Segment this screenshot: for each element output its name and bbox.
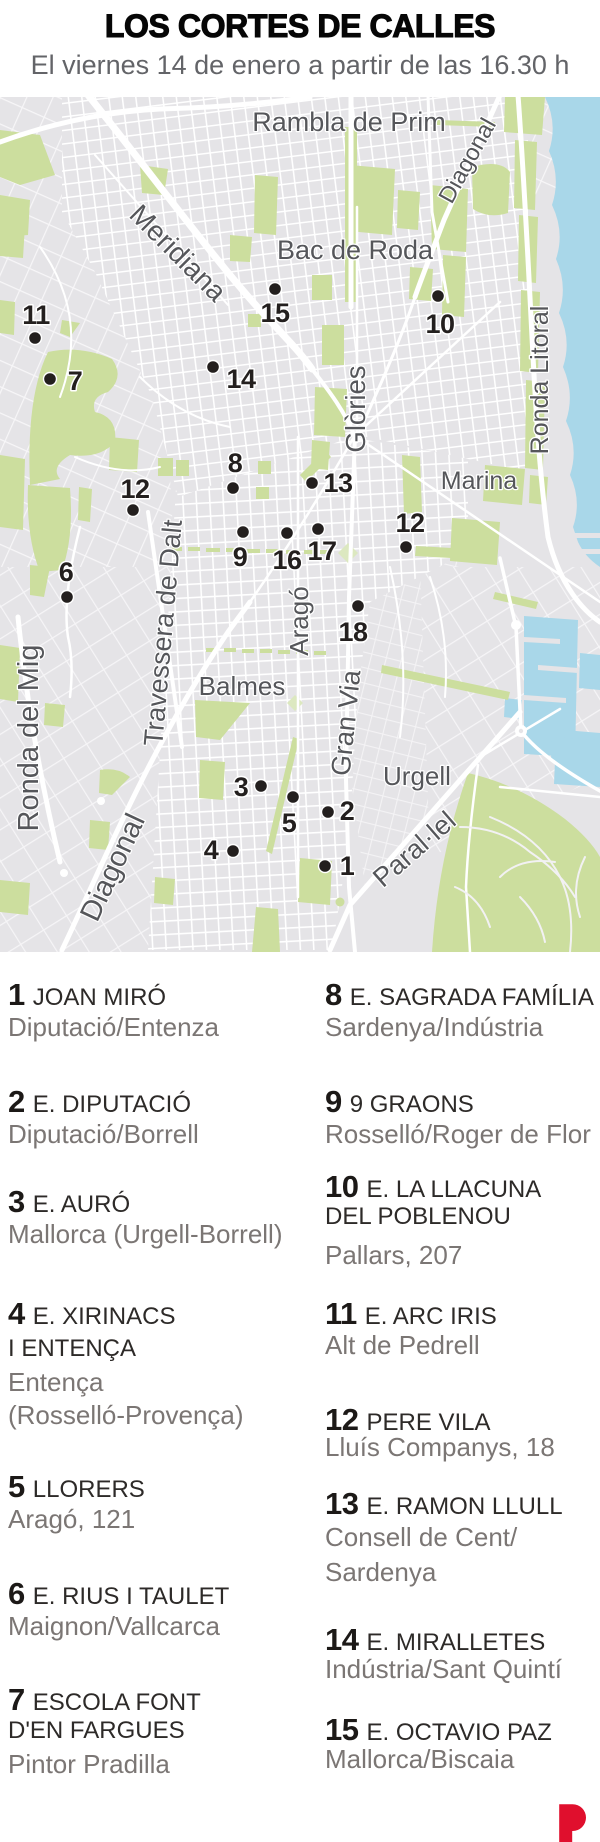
svg-text:Urgell: Urgell bbox=[383, 761, 451, 791]
svg-text:Balmes: Balmes bbox=[199, 671, 286, 701]
svg-text:6: 6 bbox=[59, 557, 74, 587]
svg-text:Diagonal: Diagonal bbox=[74, 809, 151, 926]
svg-text:Aragó: Aragó bbox=[284, 586, 314, 655]
svg-text:7: 7 bbox=[68, 366, 83, 396]
svg-text:Ronda Litoral: Ronda Litoral bbox=[526, 306, 554, 455]
svg-text:8: 8 bbox=[228, 448, 243, 478]
svg-text:5: 5 bbox=[282, 808, 297, 838]
svg-text:11: 11 bbox=[22, 300, 50, 330]
svg-text:Rambla de Prim: Rambla de Prim bbox=[252, 107, 446, 137]
svg-text:10: 10 bbox=[425, 309, 454, 339]
svg-text:12: 12 bbox=[120, 474, 149, 504]
svg-text:2: 2 bbox=[340, 796, 355, 826]
svg-text:13: 13 bbox=[323, 468, 353, 498]
svg-text:Ronda del Mig: Ronda del Mig bbox=[13, 645, 45, 832]
svg-text:1: 1 bbox=[340, 851, 355, 881]
svg-text:Travessera de Dalt: Travessera de Dalt bbox=[138, 518, 188, 747]
svg-text:4: 4 bbox=[204, 835, 219, 865]
svg-text:Paral·lel: Paral·lel bbox=[367, 805, 461, 893]
svg-text:16: 16 bbox=[272, 545, 302, 575]
svg-text:17: 17 bbox=[307, 536, 336, 566]
svg-text:Meridiana: Meridiana bbox=[124, 199, 233, 308]
svg-text:12: 12 bbox=[395, 508, 424, 538]
svg-text:3: 3 bbox=[234, 772, 249, 802]
svg-text:Bac de Roda: Bac de Roda bbox=[277, 235, 434, 265]
svg-text:Marina: Marina bbox=[441, 467, 518, 495]
svg-text:Glòries: Glòries bbox=[340, 365, 371, 452]
svg-text:18: 18 bbox=[338, 617, 368, 647]
svg-text:Gran Via: Gran Via bbox=[326, 668, 367, 778]
svg-text:9: 9 bbox=[233, 542, 248, 572]
svg-text:15: 15 bbox=[260, 298, 290, 328]
svg-text:14: 14 bbox=[226, 364, 256, 394]
